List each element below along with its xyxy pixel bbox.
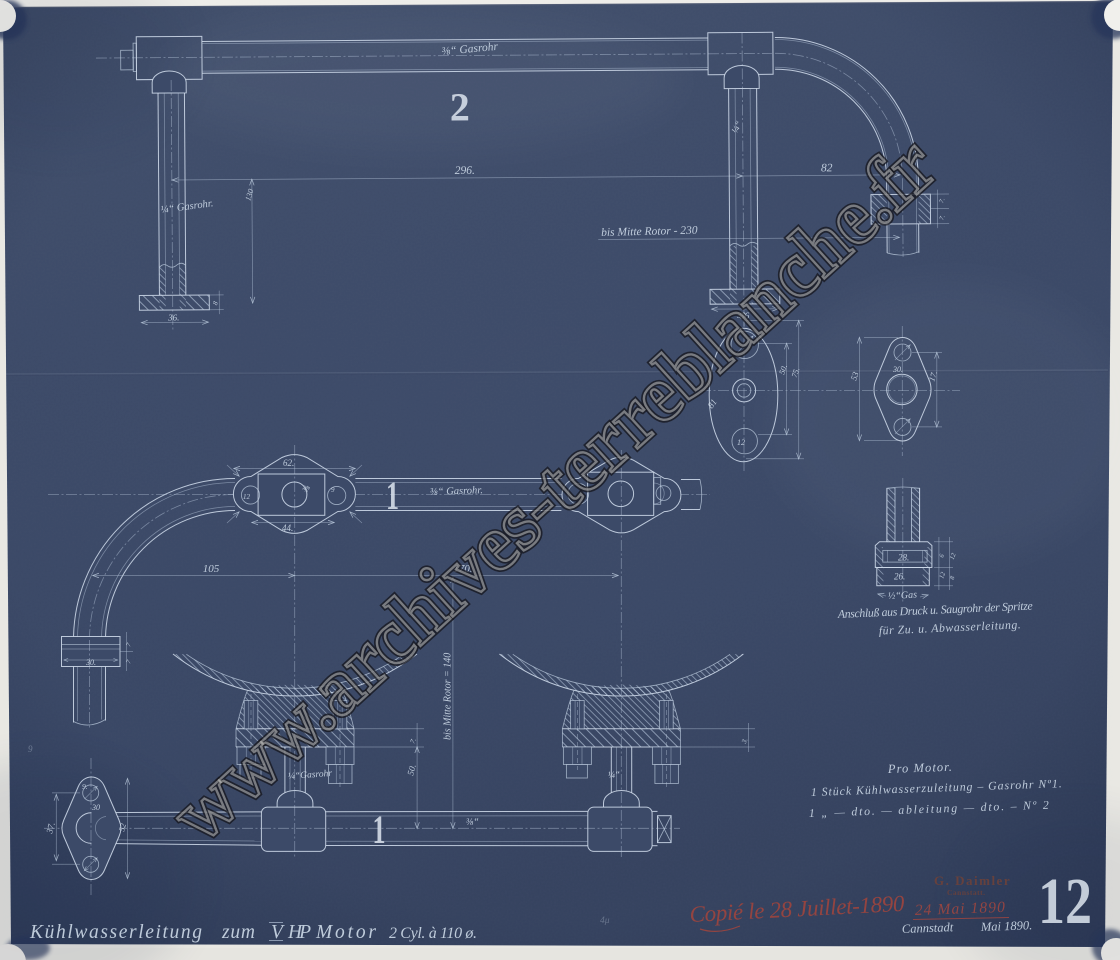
- svg-text:Kühlwasserleitung: Kühlwasserleitung: [29, 922, 202, 943]
- svg-text:4μ: 4μ: [600, 916, 610, 926]
- svg-text:9: 9: [28, 744, 33, 754]
- svg-text:HP: HP: [287, 922, 311, 943]
- svg-text:105: 105: [203, 563, 220, 575]
- svg-text:2 Cyl. à 110 ø.: 2 Cyl. à 110 ø.: [389, 925, 477, 942]
- svg-text:Mai 1890.: Mai 1890.: [980, 918, 1033, 934]
- svg-text:⅜“ Gasrohr.: ⅜“ Gasrohr.: [430, 485, 483, 498]
- svg-text:bis Mitte Rotor = 140: bis Mitte Rotor = 140: [443, 653, 454, 740]
- svg-text:28.: 28.: [898, 553, 909, 563]
- svg-text:30.: 30.: [892, 365, 903, 374]
- svg-text:62.: 62.: [283, 458, 294, 468]
- svg-text:V: V: [271, 922, 285, 943]
- svg-text:1: 1: [373, 807, 386, 852]
- svg-text:zum: zum: [221, 922, 255, 943]
- svg-text:9.: 9.: [82, 782, 88, 791]
- svg-text:¼“: ¼“: [607, 769, 620, 781]
- svg-text:12: 12: [243, 493, 251, 501]
- svg-text:½“Gas: ½“Gas: [888, 589, 918, 602]
- svg-text:bis Mitte Rotor - 230: bis Mitte Rotor - 230: [601, 225, 698, 239]
- svg-text:30: 30: [91, 803, 100, 812]
- svg-text:44.: 44.: [282, 523, 293, 533]
- svg-text:12: 12: [1038, 865, 1092, 938]
- svg-text:1: 1: [386, 473, 399, 518]
- svg-text:9: 9: [331, 486, 335, 494]
- svg-text:2: 2: [450, 84, 470, 129]
- svg-text:26.: 26.: [894, 572, 905, 582]
- svg-text:Cannstadt: Cannstadt: [902, 920, 954, 936]
- svg-text:30.: 30.: [85, 658, 96, 667]
- svg-text:296.: 296.: [455, 165, 475, 177]
- svg-text:Cannstatt.: Cannstatt.: [947, 888, 986, 897]
- svg-text:82: 82: [821, 162, 833, 174]
- svg-text:G. Daimler: G. Daimler: [934, 873, 1011, 888]
- svg-text:36.: 36.: [167, 312, 179, 322]
- svg-text:⅜“: ⅜“: [466, 817, 480, 828]
- svg-text:Pro Motor.: Pro Motor.: [887, 760, 952, 776]
- svg-text:24 Mai 1890: 24 Mai 1890: [915, 899, 1006, 919]
